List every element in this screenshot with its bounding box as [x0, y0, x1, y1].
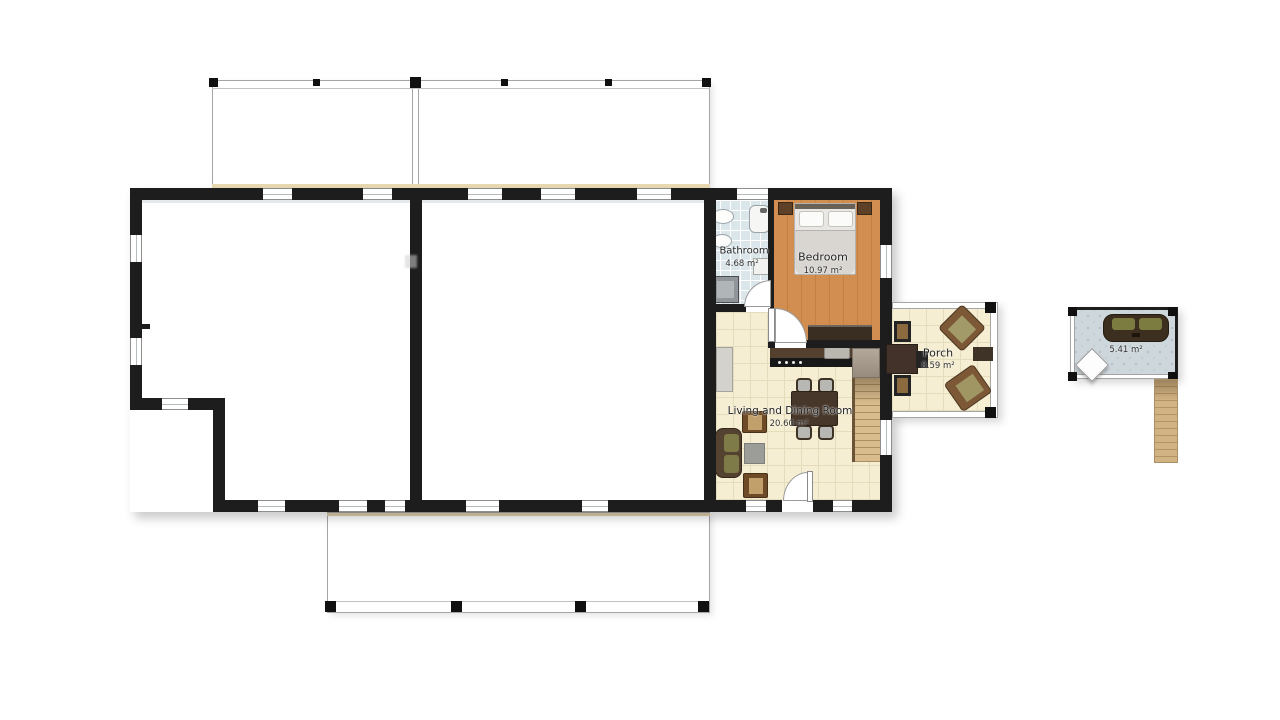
deck-post: [985, 407, 996, 418]
room-label-bathroom: Bathroom: [719, 246, 768, 257]
deck-post: [985, 302, 996, 313]
deck-post: [209, 78, 218, 87]
window: [880, 245, 892, 278]
floor-plan-canvas: Bathroom 4.68 m² Bedroom 10.97 m² Living…: [0, 0, 1280, 720]
shower-tray-icon: [717, 281, 734, 298]
deck-post: [1068, 307, 1077, 316]
wall-notch-vertical: [213, 410, 225, 512]
deck-post: [451, 601, 462, 612]
window: [880, 420, 892, 455]
wall-tick: [142, 324, 150, 329]
top-deck-rail-line: [212, 88, 710, 89]
porch-table-icon[interactable]: [886, 344, 918, 374]
sofa-detail: [1132, 333, 1140, 337]
top-deck[interactable]: [212, 80, 710, 186]
outdoor-sofa-icon[interactable]: [1103, 314, 1169, 342]
window: [833, 500, 852, 512]
window: [541, 188, 575, 200]
deck-post: [313, 79, 320, 86]
window: [130, 338, 142, 365]
room-label-living: Living and Dining Room: [728, 405, 853, 417]
window: [746, 500, 766, 512]
fridge-icon[interactable]: [852, 348, 880, 378]
armchair-icon[interactable]: [743, 473, 768, 498]
deck-post: [410, 77, 421, 88]
nightstand-icon[interactable]: [778, 202, 793, 215]
porch-rail-top: [892, 302, 998, 309]
window: [582, 500, 608, 512]
window: [468, 188, 502, 200]
armchair-cushion: [948, 315, 976, 343]
deck-post: [1168, 307, 1177, 316]
clipped-label-artifact: [405, 255, 417, 268]
bottom-deck-rail-line: [327, 601, 710, 602]
sofa-cushion: [724, 455, 739, 473]
window: [162, 398, 188, 410]
porch-side-table-icon[interactable]: [973, 347, 993, 361]
wall-left: [130, 188, 142, 410]
wall-interior-2: [704, 188, 716, 512]
sideboard-icon[interactable]: [716, 347, 733, 392]
door-leaf-bedroom[interactable]: [768, 308, 775, 342]
window: [363, 188, 392, 200]
nightstand-icon[interactable]: [857, 202, 872, 215]
threshold-strip: [327, 513, 710, 516]
cooktop-knob-icon: [799, 361, 802, 364]
room-area-living: 20.60 m²: [770, 419, 809, 429]
deck-post: [605, 79, 612, 86]
side-deck[interactable]: [1070, 307, 1178, 379]
wall-bathroom-bottom: [710, 304, 746, 312]
deck-post: [325, 601, 336, 612]
bottom-deck[interactable]: [327, 512, 710, 613]
coffee-table-icon[interactable]: [744, 443, 765, 464]
wall-top: [130, 188, 892, 200]
staircase-icon[interactable]: [852, 378, 880, 462]
deck-post: [575, 601, 586, 612]
bed-headboard: [795, 204, 855, 209]
cooktop-knob-icon: [778, 361, 781, 364]
window: [737, 188, 768, 200]
window: [258, 500, 285, 512]
cooktop-knob-icon: [792, 361, 795, 364]
window: [339, 500, 367, 512]
sofa-cushion: [724, 434, 739, 452]
window: [385, 500, 405, 512]
room-area-side-deck: 5.41 m²: [1109, 345, 1142, 355]
deck-post: [1068, 372, 1077, 381]
window: [466, 500, 499, 512]
sofa-icon[interactable]: [715, 428, 742, 478]
sofa-cushion: [1139, 318, 1162, 330]
armchair-seat: [749, 478, 763, 494]
wall-interior-1: [410, 188, 422, 512]
outdoor-staircase-icon[interactable]: [1154, 379, 1178, 463]
porch-chair-icon[interactable]: [894, 321, 911, 342]
armchair-seat: [748, 415, 762, 430]
window: [263, 188, 292, 200]
cooktop-knob-icon: [785, 361, 788, 364]
armchair-cushion: [955, 374, 984, 402]
room-area-bathroom: 4.68 m²: [725, 259, 758, 269]
floor-edge-line: [142, 200, 704, 203]
bed-pillow: [799, 211, 824, 227]
wall-bedroom-bottom-right: [806, 340, 880, 348]
window: [637, 188, 671, 200]
deck-post: [501, 79, 508, 86]
dining-chair-icon[interactable]: [818, 425, 834, 440]
double-bed-icon[interactable]: [794, 203, 856, 275]
top-deck-divider: [412, 80, 419, 186]
deck-post: [702, 78, 711, 87]
door-leaf-entrance[interactable]: [807, 471, 813, 502]
room-area-bedroom: 10.97 m²: [804, 266, 843, 276]
sofa-cushion: [1112, 318, 1135, 330]
kitchen-sink-icon[interactable]: [824, 347, 850, 359]
deck-rail-left: [1070, 310, 1075, 379]
window: [130, 235, 142, 262]
porch-rail-bottom: [892, 411, 998, 418]
room-label-bedroom: Bedroom: [798, 251, 848, 264]
porch-chair-icon[interactable]: [894, 375, 911, 396]
room-label-porch: Porch: [923, 347, 953, 360]
bed-pillow: [828, 211, 853, 227]
bathtub-faucet-icon: [760, 208, 767, 213]
room-area-porch: 8.59 m²: [921, 361, 954, 371]
deck-post: [698, 601, 709, 612]
